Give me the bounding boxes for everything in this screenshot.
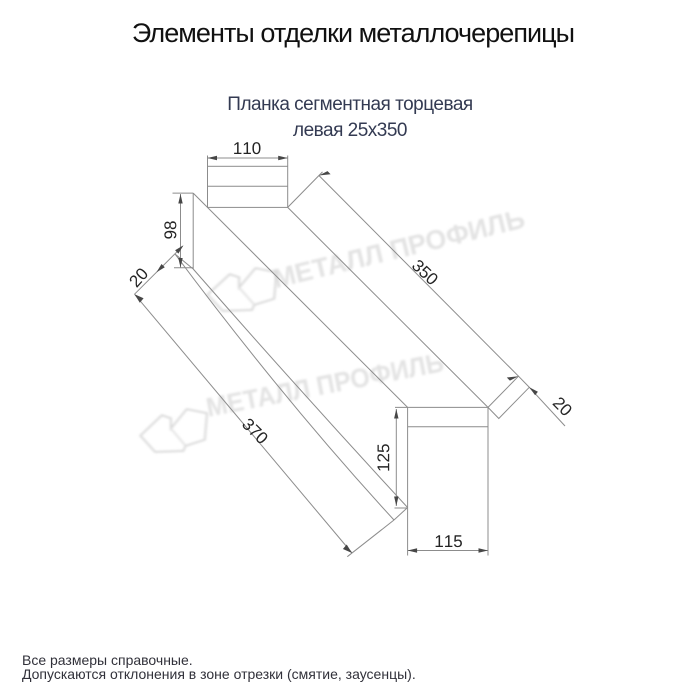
svg-text:МЕТАЛЛ ПРОФИЛЬ: МЕТАЛЛ ПРОФИЛЬ: [270, 204, 528, 294]
svg-text:МЕТАЛЛ ПРОФИЛЬ: МЕТАЛЛ ПРОФИЛЬ: [204, 346, 447, 423]
